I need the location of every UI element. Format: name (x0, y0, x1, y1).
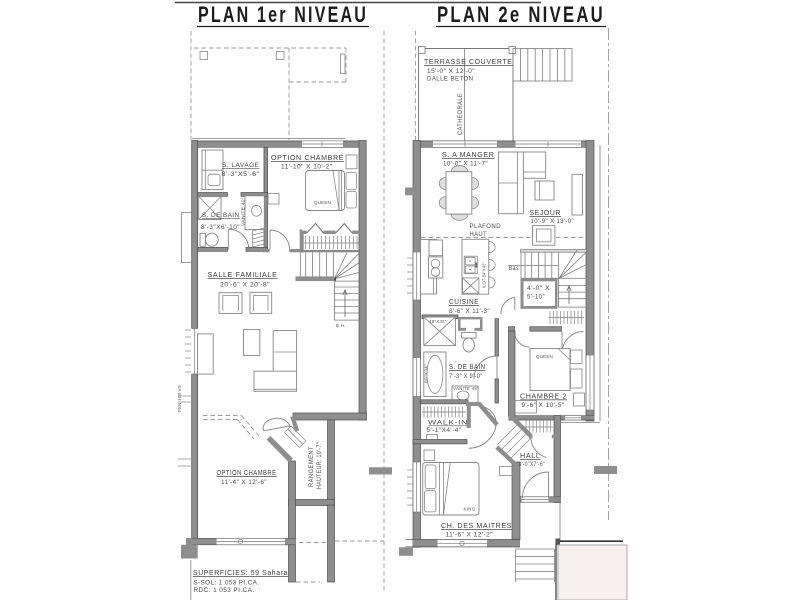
svg-text:SEJOUR: SEJOUR (530, 210, 562, 217)
svg-text:PLAN 2e NIVEAU: PLAN 2e NIVEAU (437, 2, 605, 27)
svg-text:RANGEMENT: RANGEMENT (309, 446, 315, 487)
svg-text:S. A MANGER: S. A MANGER (442, 152, 495, 159)
svg-text:S. LAVAGE: S. LAVAGE (222, 163, 260, 169)
svg-text:ILOT 84"X42": ILOT 84"X42" (482, 262, 487, 288)
svg-text:RDC: 1 053 PI.CA.: RDC: 1 053 PI.CA. (194, 588, 255, 594)
svg-text:8'-3"X6'-10": 8'-3"X6'-10" (201, 225, 240, 231)
svg-text:VANITE 42": VANITE 42" (241, 197, 246, 226)
svg-text:60"X34": 60"X34" (424, 364, 429, 383)
svg-text:11'-6" X 12'-2": 11'-6" X 12'-2" (446, 533, 494, 539)
svg-text:SALLE FAMILIALE: SALLE FAMILIALE (208, 272, 278, 279)
svg-text:11'-4" X 12'-6": 11'-4" X 12'-6" (221, 480, 267, 486)
svg-text:PLAFOND: PLAFOND (470, 224, 502, 230)
svg-text:PLAN 1er NIVEAU: PLAN 1er NIVEAU (198, 2, 368, 27)
svg-text:48"X36": 48"X36" (429, 319, 447, 324)
svg-text:HAUTEUR: 10'-7": HAUTEUR: 10'-7" (317, 442, 323, 489)
svg-text:QUEEN: QUEEN (536, 354, 553, 359)
svg-text:CH. DES MAITRES: CH. DES MAITRES (441, 523, 512, 530)
svg-text:Bas: Bas (509, 266, 520, 272)
svg-text:8'-3"X5'-6": 8'-3"X5'-6" (222, 172, 260, 178)
svg-text:S. DE BAIN: S. DE BAIN (202, 213, 240, 219)
svg-text:8'-6" X 11'-3": 8'-6" X 11'-3" (449, 309, 490, 315)
svg-text:OPTION CHAMBRE: OPTION CHAMBRE (271, 155, 344, 162)
svg-text:7'-3" X 9'-0": 7'-3" X 9'-0" (449, 374, 483, 380)
svg-text:20'-6" X 20'-8": 20'-6" X 20'-8" (220, 283, 270, 289)
svg-text:VANITE 48": VANITE 48" (453, 386, 479, 391)
svg-text:S-SOL: 1 053 PI.CA.: S-SOL: 1 053 PI.CA. (194, 581, 260, 587)
svg-text:WALK-IN: WALK-IN (428, 421, 468, 427)
svg-text:HALL: HALL (520, 453, 541, 460)
svg-text:SUPERFICIES: 59 Sahara: SUPERFICIES: 59 Sahara (193, 570, 288, 577)
svg-text:11'-10" X 10'-2": 11'-10" X 10'-2" (281, 165, 333, 171)
svg-text:5'-1"X4'-4": 5'-1"X4'-4" (427, 428, 462, 434)
svg-text:9'-6" X 10'-5": 9'-6" X 10'-5" (522, 403, 565, 409)
svg-text:CHAMBRE 2: CHAMBRE 2 (520, 394, 567, 401)
svg-text:B.H.: B.H. (336, 323, 346, 328)
svg-text:OPTION CHAMBRE: OPTION CHAMBRE (217, 470, 277, 477)
svg-text:QUEEN: QUEEN (314, 200, 331, 205)
svg-text:3'-0"X7'-6": 3'-0"X7'-6" (519, 462, 546, 468)
svg-text:5'-10": 5'-10" (527, 295, 545, 301)
svg-text:4'-0" X: 4'-0" X (527, 286, 550, 292)
svg-text:HAUT: HAUT (470, 232, 488, 238)
svg-text:CUISINE: CUISINE (449, 299, 479, 306)
svg-text:KING: KING (464, 507, 476, 512)
svg-text:15'-0" X 12'-0": 15'-0" X 12'-0" (427, 69, 475, 75)
svg-text:DALLE BETON: DALLE BETON (427, 77, 474, 83)
svg-text:CATHEDRALE: CATHEDRALE (458, 93, 464, 135)
svg-text:S. DE BAIN: S. DE BAIN (449, 364, 486, 371)
svg-text:10'-9" X 13'-0": 10'-9" X 13'-0" (531, 219, 575, 225)
svg-text:FEN 108 VS: FEN 108 VS (177, 385, 182, 412)
svg-text:10'-0" X 11'-7": 10'-0" X 11'-7" (443, 162, 488, 168)
svg-text:TERRASSE COUVERTE: TERRASSE COUVERTE (424, 59, 513, 66)
